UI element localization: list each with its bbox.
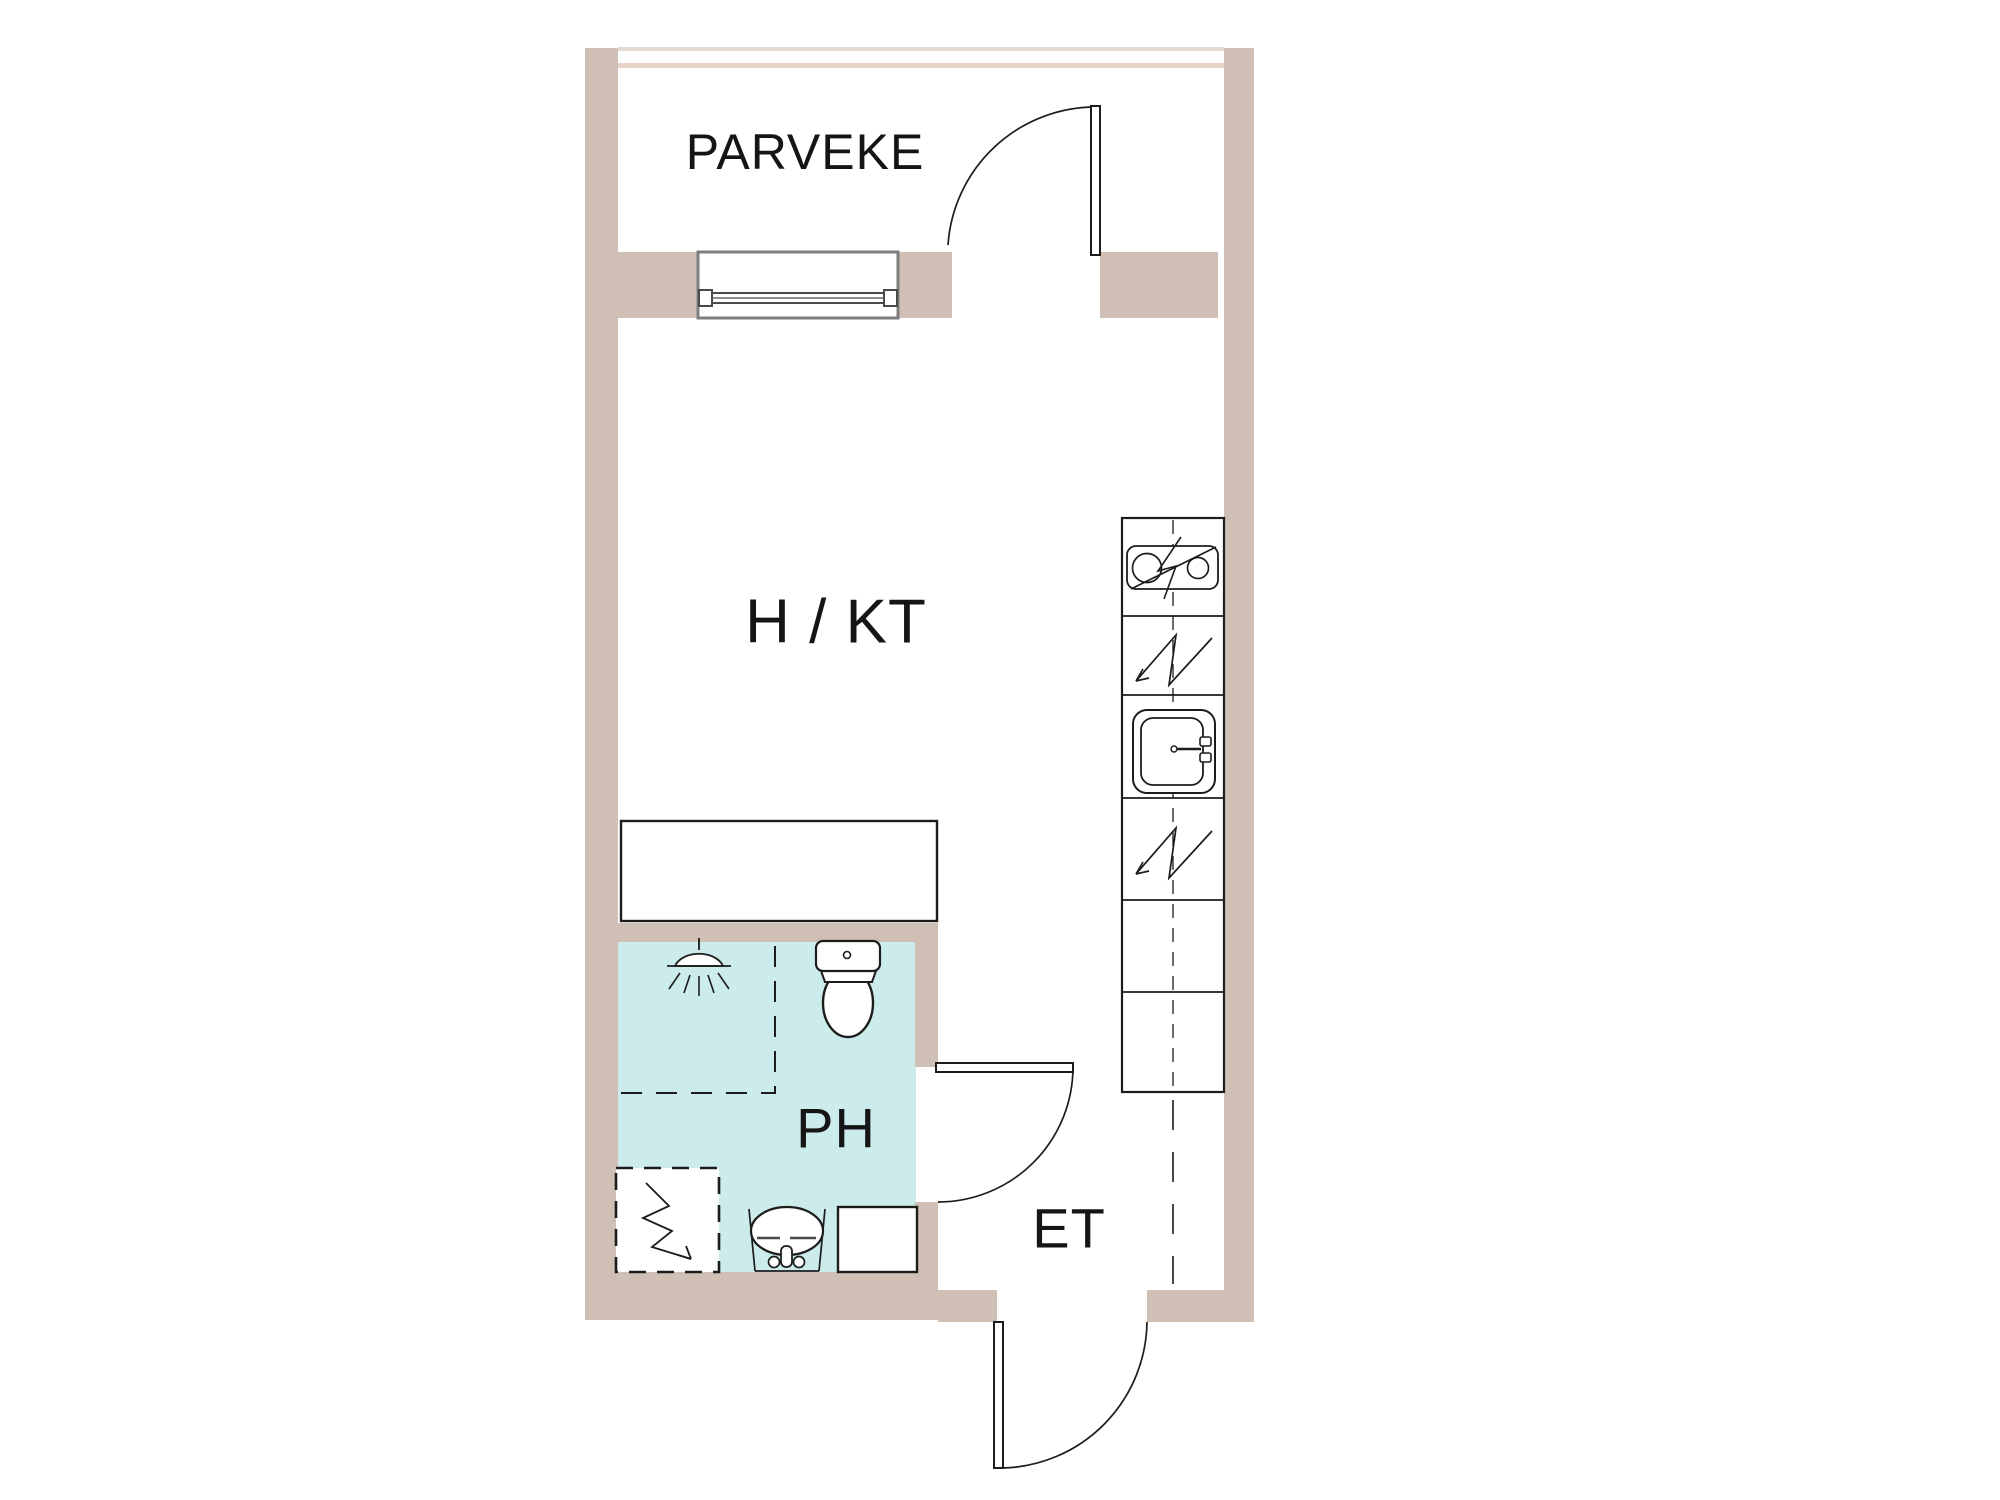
cooktop-icon <box>1127 537 1218 599</box>
bathroom-cabinet <box>838 1207 917 1272</box>
shower-enclosure <box>620 946 775 1093</box>
room-label-balcony: PARVEKE <box>686 123 925 181</box>
bathroom-door <box>936 1063 1073 1202</box>
washing-machine-icon <box>616 1168 719 1272</box>
room-label-bathroom: PH <box>796 1096 876 1161</box>
shower-icon <box>667 938 731 996</box>
kitchen-sink-icon <box>1133 710 1215 793</box>
washbasin-icon <box>749 1207 825 1271</box>
balcony-door <box>948 106 1100 255</box>
plan-linework <box>0 0 2000 1500</box>
room-label-living-kitchen: H / KT <box>745 587 927 658</box>
room-label-entry: ET <box>1032 1196 1106 1261</box>
toilet-icon <box>816 941 880 1037</box>
floor-plan: PARVEKE H / KT PH ET <box>0 0 2000 1500</box>
entry-door <box>994 1322 1147 1468</box>
balcony-window <box>698 252 898 318</box>
kitchen-cabinets <box>1122 518 1224 1092</box>
kitchen-counter <box>621 821 937 921</box>
